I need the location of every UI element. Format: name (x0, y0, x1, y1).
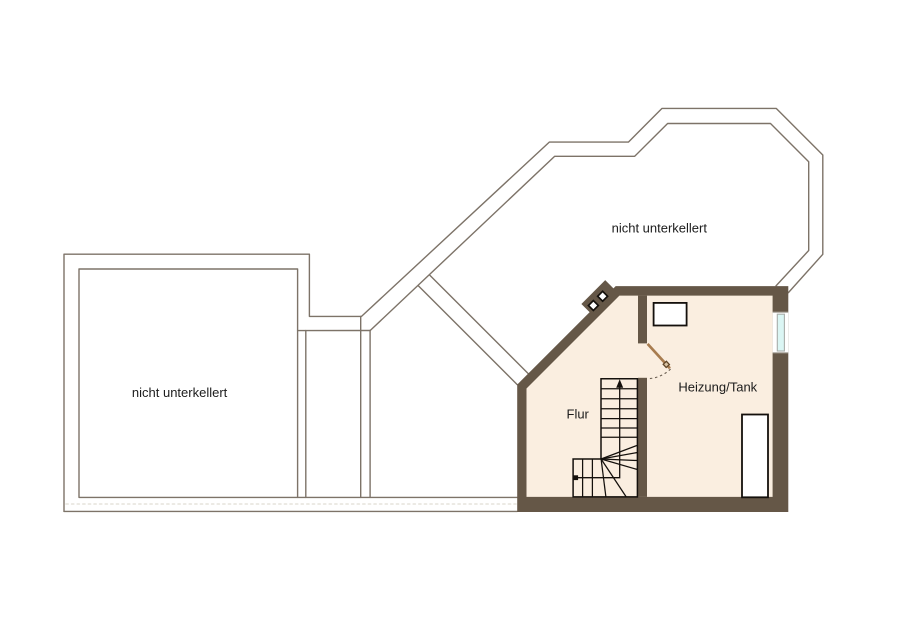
svg-text:Heizung/Tank: Heizung/Tank (678, 380, 757, 395)
svg-text:nicht unterkellert: nicht unterkellert (612, 221, 708, 236)
svg-text:nicht unterkellert: nicht unterkellert (132, 385, 228, 400)
svg-text:Flur: Flur (567, 406, 590, 421)
